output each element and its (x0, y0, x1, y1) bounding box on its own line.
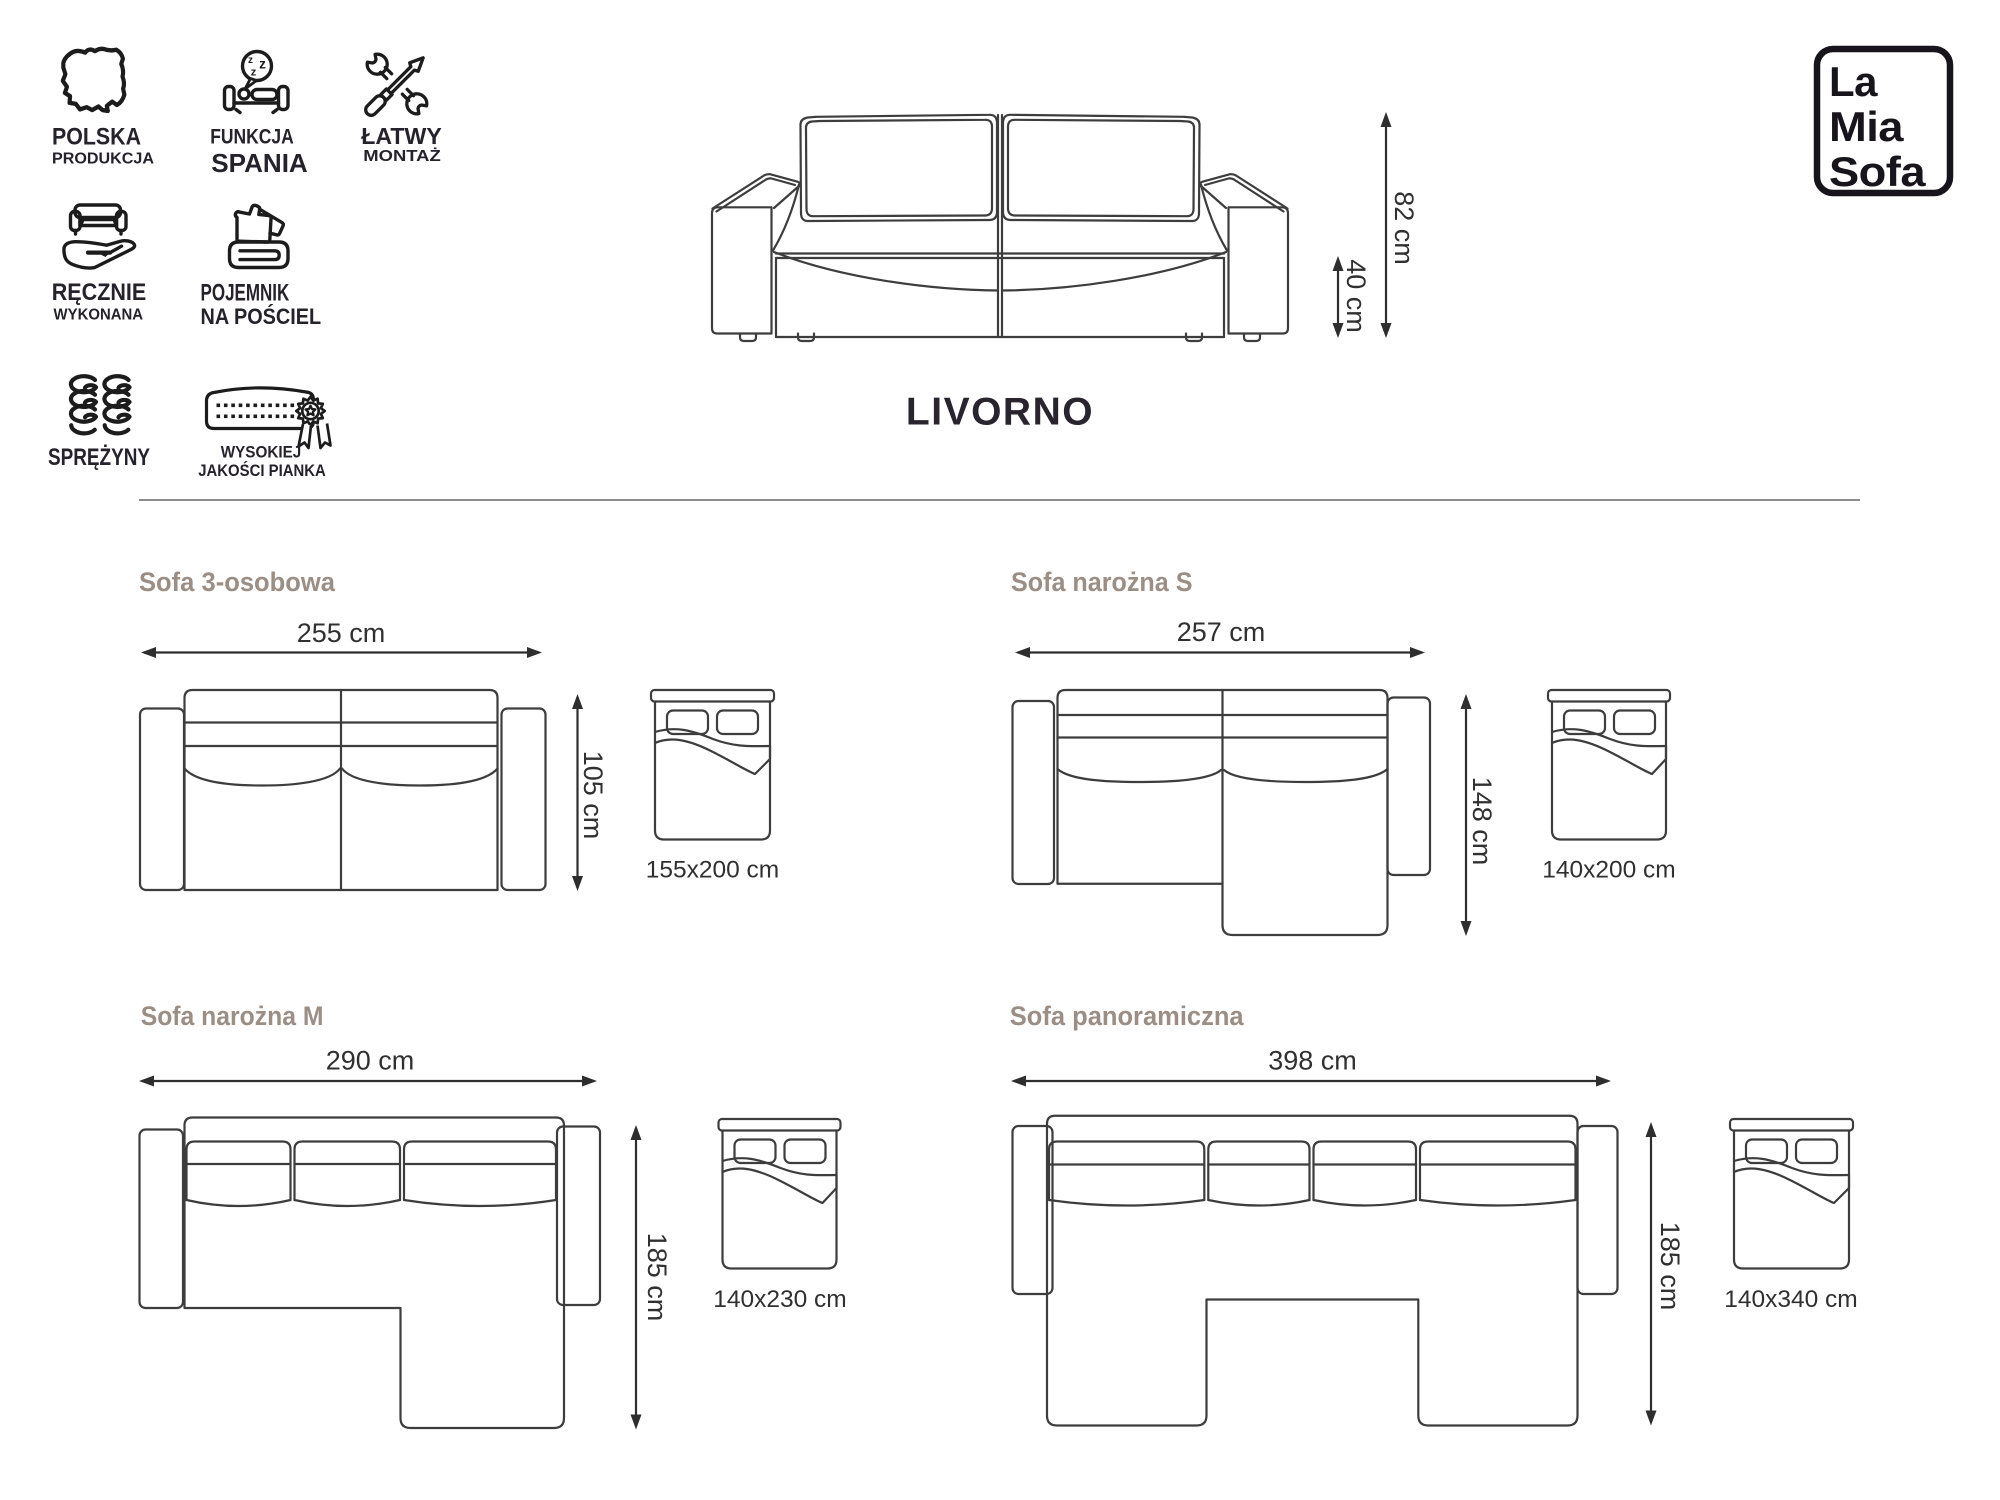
svg-text:105 cm: 105 cm (578, 751, 608, 840)
svg-text:SPANIA: SPANIA (211, 148, 308, 178)
svg-text:z: z (248, 55, 253, 66)
svg-text:40 cm: 40 cm (1341, 259, 1371, 333)
svg-text:257 cm: 257 cm (1177, 617, 1266, 647)
svg-text:POJEMNIK: POJEMNIK (201, 279, 290, 306)
svg-text:SPRĘŻYNY: SPRĘŻYNY (48, 444, 150, 471)
svg-text:140x230 cm: 140x230 cm (713, 1286, 846, 1313)
svg-text:LIVORNO: LIVORNO (906, 391, 1094, 434)
svg-text:148 cm: 148 cm (1467, 777, 1497, 866)
svg-text:POLSKA: POLSKA (52, 124, 141, 151)
svg-text:Sofa 3-osobowa: Sofa 3-osobowa (139, 567, 335, 597)
svg-text:WYKONANA: WYKONANA (54, 307, 144, 324)
svg-text:WYSOKIEJ: WYSOKIEJ (221, 444, 302, 462)
svg-text:Mia: Mia (1829, 103, 1904, 150)
svg-text:Sofa panoramiczna: Sofa panoramiczna (1010, 1001, 1244, 1031)
svg-text:290 cm: 290 cm (326, 1046, 415, 1076)
svg-text:PRODUKCJA: PRODUKCJA (52, 151, 154, 168)
svg-text:185 cm: 185 cm (1655, 1222, 1685, 1311)
svg-text:FUNKCJA: FUNKCJA (210, 126, 294, 149)
svg-text:NA POŚCIEL: NA POŚCIEL (201, 304, 322, 329)
svg-text:185 cm: 185 cm (642, 1233, 672, 1322)
svg-text:398 cm: 398 cm (1268, 1046, 1357, 1076)
svg-text:z: z (251, 67, 257, 79)
svg-text:155x200 cm: 155x200 cm (646, 857, 779, 884)
svg-text:MONTAŻ: MONTAŻ (363, 148, 441, 165)
svg-text:255 cm: 255 cm (297, 618, 386, 648)
svg-text:Sofa: Sofa (1829, 148, 1926, 195)
svg-text:ŁATWY: ŁATWY (361, 123, 442, 149)
svg-text:140x340 cm: 140x340 cm (1724, 1286, 1857, 1313)
svg-text:82 cm: 82 cm (1389, 191, 1419, 265)
svg-text:140x200 cm: 140x200 cm (1542, 857, 1675, 884)
svg-text:JAKOŚCI PIANKA: JAKOŚCI PIANKA (198, 461, 326, 480)
svg-text:z: z (259, 57, 266, 72)
svg-text:La: La (1829, 58, 1878, 105)
svg-text:Sofa narożna S: Sofa narożna S (1011, 567, 1193, 597)
svg-text:Sofa narożna M: Sofa narożna M (141, 1001, 324, 1031)
svg-text:RĘCZNIE: RĘCZNIE (52, 279, 147, 306)
